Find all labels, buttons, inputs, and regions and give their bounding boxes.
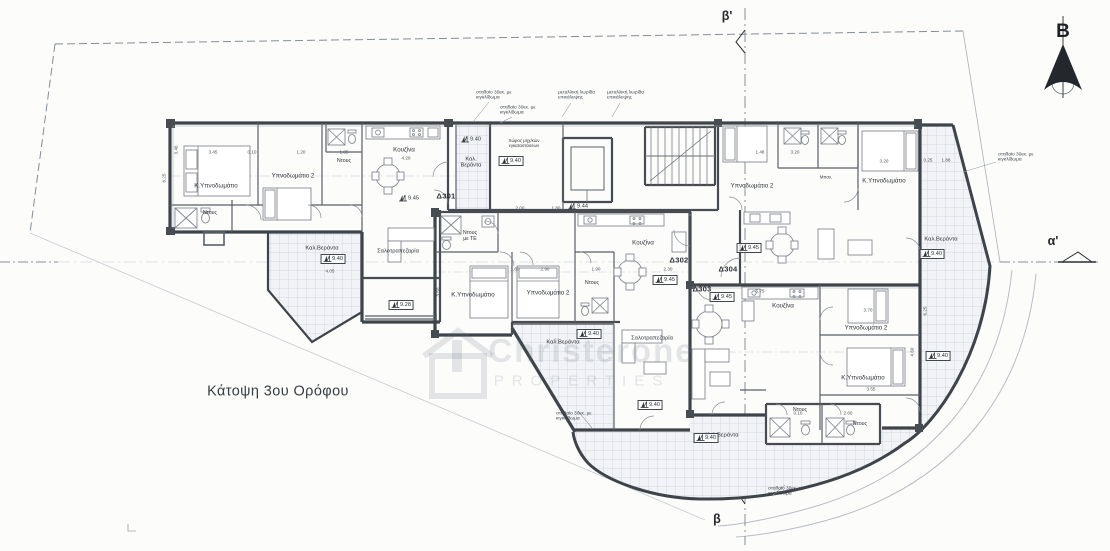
shower <box>441 216 461 234</box>
floor-plan-sheet: Κ.ΥπνοδωμάτιοΝτουςΥπνοδωμάτιο 2ΝτουςΚουζ… <box>0 0 1110 551</box>
shower <box>175 208 197 228</box>
sofa <box>692 349 730 399</box>
bed <box>848 289 888 323</box>
bed <box>723 126 767 162</box>
bed <box>862 131 918 171</box>
toilet <box>442 237 451 250</box>
toilet <box>846 421 855 435</box>
toilet <box>581 303 589 316</box>
sofa <box>622 330 666 374</box>
bed <box>847 348 905 386</box>
shower <box>821 128 838 144</box>
bed <box>470 266 508 318</box>
shower <box>328 129 345 145</box>
watermark-logo-icon <box>424 331 492 396</box>
north-arrow-icon <box>1044 16 1082 98</box>
sofa <box>818 229 872 259</box>
floor-plan-graphics <box>0 0 1110 551</box>
shower <box>826 418 844 437</box>
shower <box>784 128 801 144</box>
shower <box>592 298 608 313</box>
dining-table <box>766 227 798 263</box>
kitchen-counter <box>744 212 790 224</box>
sofa <box>388 228 434 262</box>
toilet <box>801 131 809 145</box>
kitchen-counter <box>742 287 818 321</box>
staircase <box>645 127 715 185</box>
bed <box>517 266 559 318</box>
toilet <box>201 208 210 223</box>
toilet <box>348 130 356 144</box>
toilet <box>801 421 810 435</box>
elevator <box>571 147 604 202</box>
section-flag-right <box>1062 252 1092 262</box>
bed <box>263 188 311 220</box>
kitchen-counter <box>366 126 440 139</box>
kitchen-counter <box>578 214 686 252</box>
shower <box>770 418 790 437</box>
toilet <box>838 131 846 145</box>
section-flag-top <box>736 30 745 53</box>
bed <box>184 146 250 196</box>
dining-table <box>692 305 729 344</box>
